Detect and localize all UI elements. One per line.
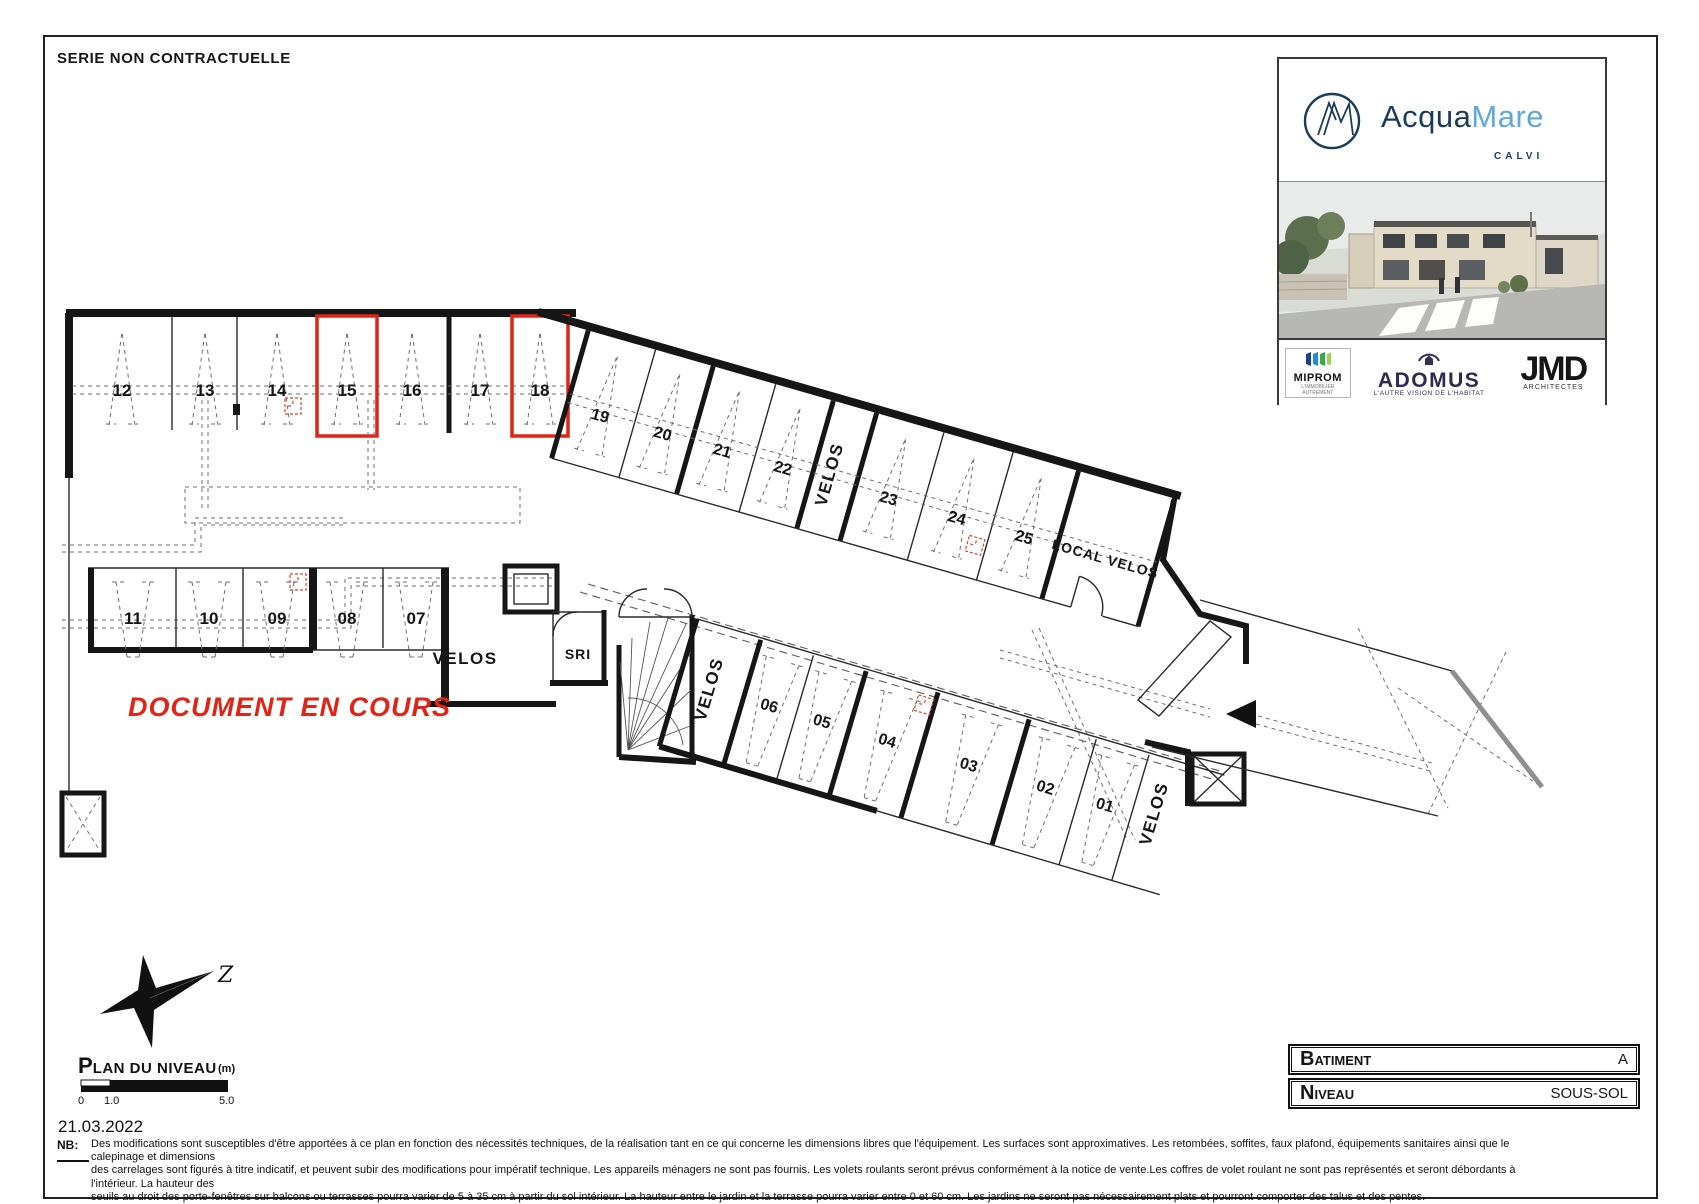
stall-07-label: 07: [407, 609, 426, 628]
stall-04-label: 04: [876, 731, 898, 752]
batiment-value: A: [1618, 1051, 1628, 1068]
stall-21-label: 21: [711, 441, 733, 462]
stall-02-label: 02: [1034, 778, 1056, 799]
scale-tick-5: 5.0: [219, 1095, 234, 1107]
stall-09-label: 09: [268, 609, 287, 628]
stall-01-label: 01: [1094, 795, 1116, 816]
lower-parking-band: 06 05 04 03 02 01 VELOS VELOS: [659, 619, 1224, 903]
stall-20-label: 20: [652, 424, 674, 445]
plan-title: PLAN DU NIVEAU: [78, 1053, 217, 1078]
watermark-document-en-cours: DOCUMENT EN COURS: [128, 692, 451, 722]
logo-panel: AcquaMare CALVI: [1277, 57, 1607, 405]
scale-bar: [81, 1080, 228, 1092]
stall-18-label: 18: [531, 381, 550, 400]
shaft-box: [62, 793, 104, 855]
brand-logo: AcquaMare CALVI: [1279, 59, 1605, 181]
scale-tick-0: 0: [78, 1095, 84, 1107]
footnote-line-2: des carrelages sont figurés à titre indi…: [91, 1164, 1525, 1190]
adomus-logo: ADOMUS L'AUTRE VISION DE L'HABITAT: [1351, 349, 1508, 398]
footnote-line-3: seuils au droit des porte-fenêtres sur b…: [91, 1191, 1525, 1204]
stall-25-label: 25: [1013, 527, 1035, 548]
info-row-niveau: NIVEAU SOUS-SOL: [1288, 1078, 1640, 1109]
stall-11-label: 11: [124, 609, 142, 628]
plan-date: 21.03.2022: [58, 1117, 143, 1136]
local-velos-label: LOCAL VELOS: [1050, 536, 1160, 582]
stall-24-label: 24: [946, 508, 968, 529]
sri-label: SRI: [565, 646, 591, 662]
miprom-bars-icon: [1305, 351, 1331, 367]
ramp-direction-arrow: [1226, 700, 1256, 728]
rendering-scene: [1279, 182, 1605, 338]
stall-10-label: 10: [200, 609, 219, 628]
ramp-area: [1138, 500, 1542, 816]
footnote-label: NB:: [57, 1138, 78, 1152]
stall-19-label: 19: [589, 406, 611, 427]
stall-05-label: 05: [811, 711, 833, 732]
scale-tick-1: 1.0: [104, 1095, 119, 1107]
elevator-shaft: [505, 566, 557, 612]
footnote: NB: Des modifications sont susceptibles …: [57, 1138, 1525, 1204]
title-block: PLAN DU NIVEAU (m) 0 1.0 5.0 21.03.2022: [58, 1053, 235, 1136]
velos-left-label: VELOS: [432, 649, 497, 668]
stall-14-label: 14: [268, 381, 287, 400]
niveau-value: SOUS-SOL: [1550, 1085, 1628, 1102]
north-arrow: Z: [100, 955, 234, 1048]
project-rendering: [1279, 181, 1605, 338]
north-label: Z: [217, 963, 234, 988]
brand-city: CALVI: [1494, 151, 1543, 162]
stall-23-label: 23: [877, 489, 899, 510]
jmd-logo: JMD ARCHITECTES: [1508, 355, 1599, 391]
partner-logos: MIPROM L'IMMOBILIER AUTREMENT ADOMUS L'A…: [1279, 338, 1605, 406]
stall-16-label: 16: [403, 381, 422, 400]
velos-lower-label: VELOS: [691, 655, 728, 723]
stall-03-label: 03: [958, 755, 980, 776]
adomus-house-icon: [1416, 349, 1442, 367]
lower-left-block: 11 10 09 08 07 VELOS SRI: [88, 566, 696, 762]
upper-parking-band: 19 20 21 22 23 24 25 VELOS LOCAL VELOS: [501, 312, 1181, 628]
stall-08-label: 08: [338, 609, 357, 628]
info-row-batiment: BATIMENT A: [1288, 1044, 1640, 1075]
brand-name: AcquaMare: [1381, 99, 1544, 135]
stall-13-label: 13: [196, 381, 215, 400]
niveau-label: NIVEAU: [1300, 1082, 1354, 1105]
stall-15-label: 15: [338, 381, 357, 400]
stall-22-label: 22: [772, 458, 794, 479]
stall-12-label: 12: [113, 381, 132, 400]
velos-lower-right-label: VELOS: [1136, 780, 1173, 848]
miprom-logo: MIPROM L'IMMOBILIER AUTREMENT: [1285, 348, 1351, 398]
stall-06-label: 06: [758, 696, 780, 717]
scale-unit: (m): [218, 1063, 235, 1075]
acquamare-monogram-icon: [1301, 89, 1363, 153]
batiment-label: BATIMENT: [1300, 1048, 1371, 1071]
stall-17-label: 17: [471, 381, 490, 400]
footnote-line-1: Des modifications sont susceptibles d'êt…: [91, 1138, 1525, 1164]
